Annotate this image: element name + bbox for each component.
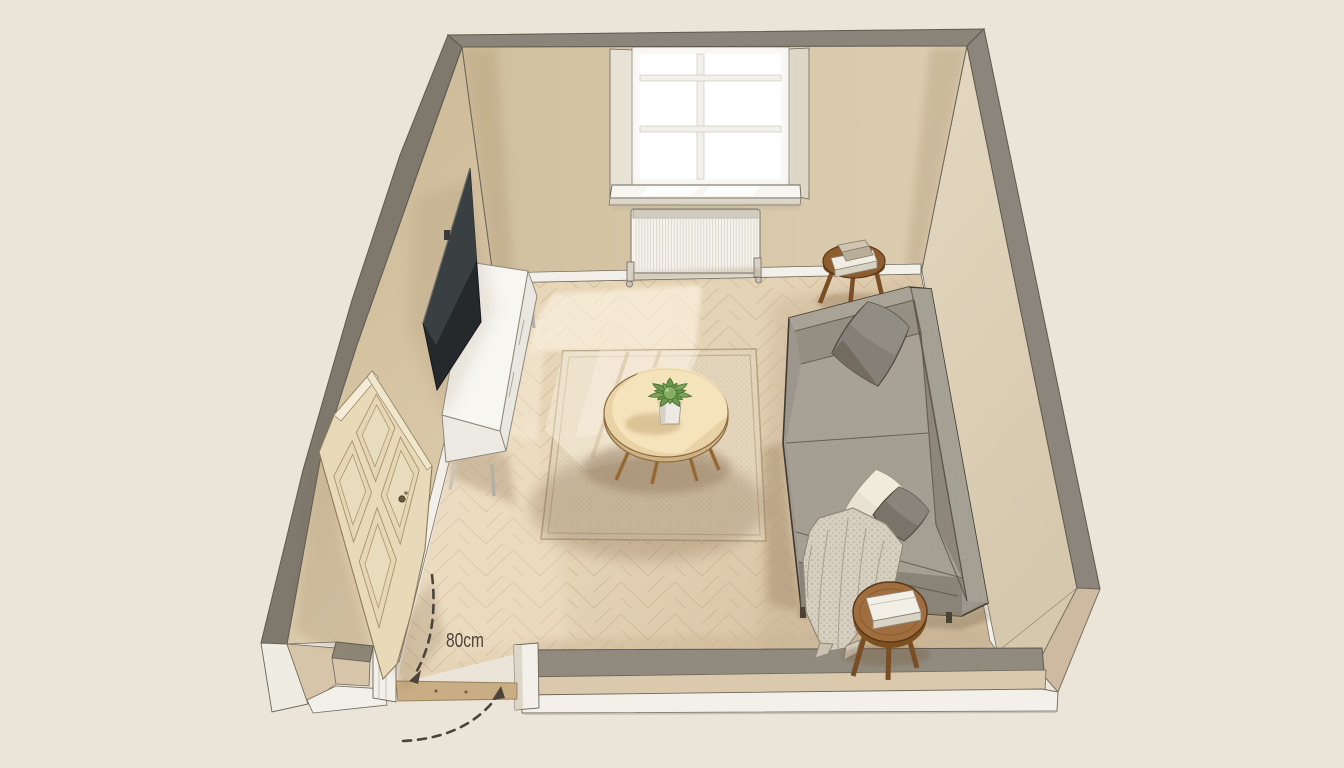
svg-text:80cm: 80cm xyxy=(446,630,484,652)
